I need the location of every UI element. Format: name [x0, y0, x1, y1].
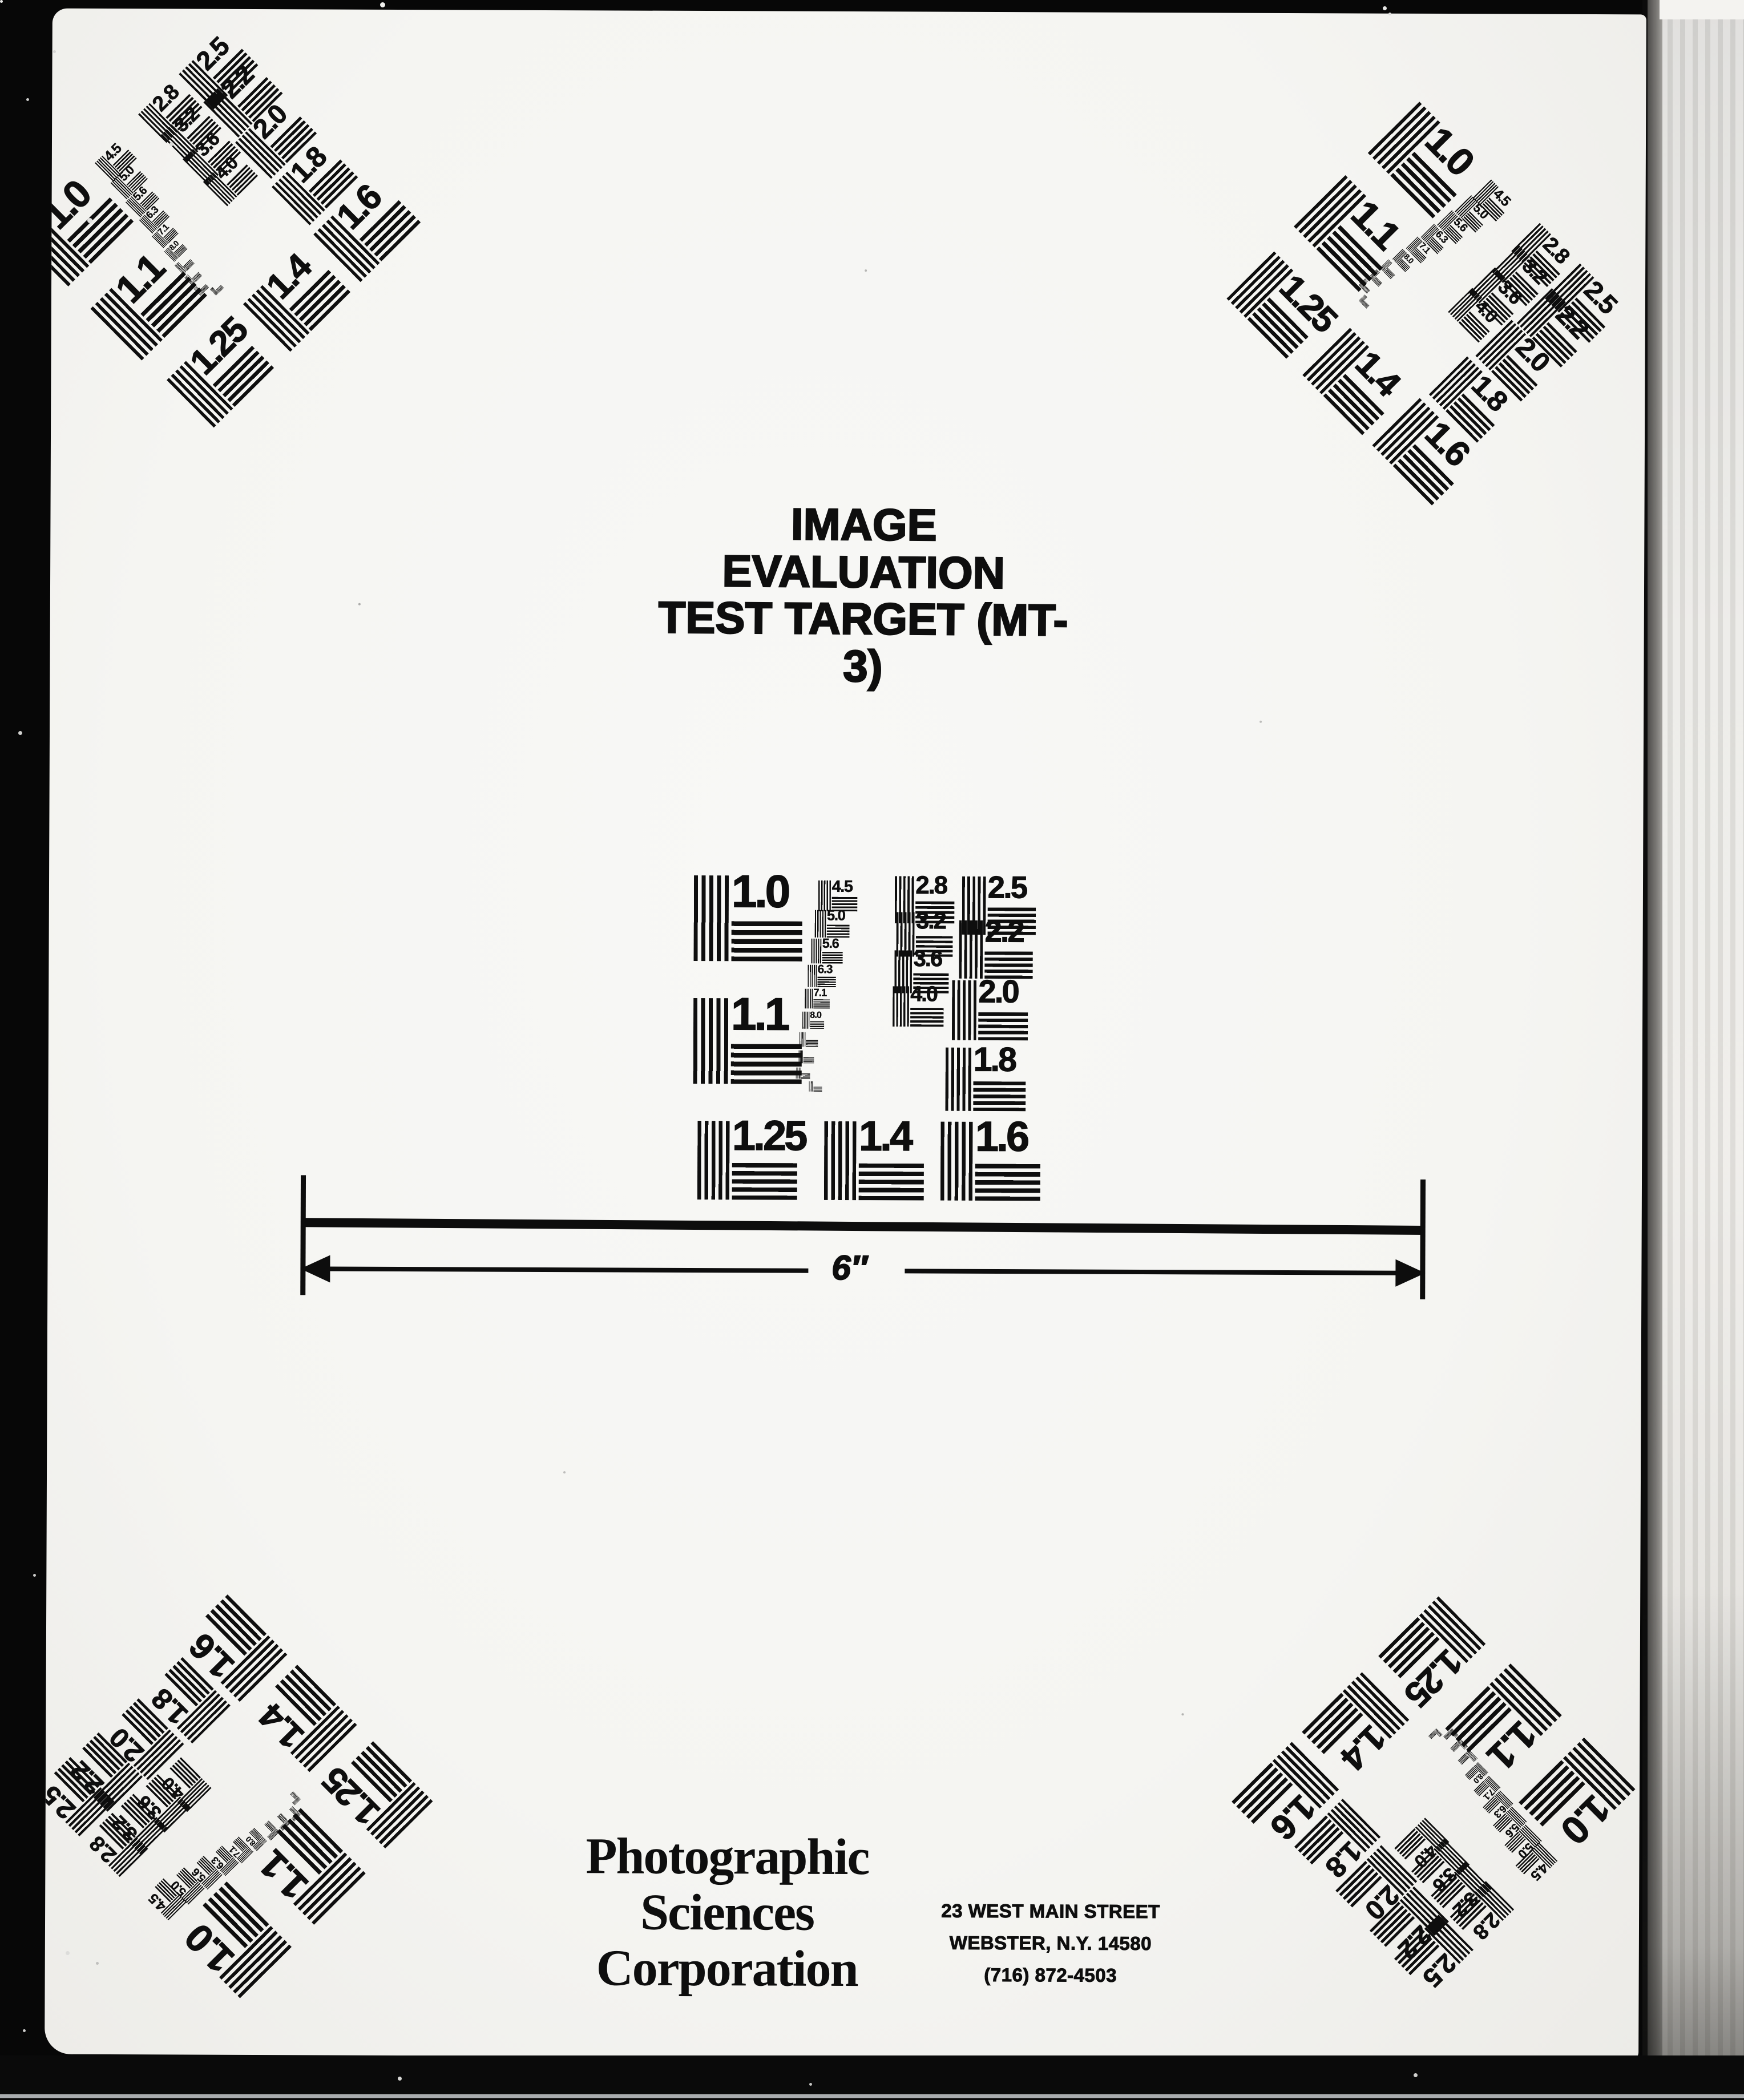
horizontal-bars-icon [810, 1021, 824, 1029]
resolution-cell-1.25: 1.25 [326, 1741, 433, 1848]
test-pattern-bottom-right: 1.01.11.251.41.64.55.05.66.37.18.02.83.2… [1224, 1589, 1635, 2001]
resolution-cell-tick [798, 1051, 814, 1064]
horizontal-bars-icon [731, 921, 802, 961]
horizontal-bars-icon [822, 952, 843, 963]
dust-specks-white [0, 0, 3, 3]
resolution-cell-5.6: 5.6 [811, 939, 842, 964]
cell-label: 2.5 [988, 872, 1027, 903]
resolution-cell-7.1: 7.1 [805, 989, 830, 1009]
resolution-cell-tick [1428, 1729, 1443, 1743]
resolution-cell-1.8: 1.8 [945, 1048, 1026, 1112]
scale-arrow-line-right [905, 1269, 1399, 1275]
vertical-bars-icon [811, 939, 821, 964]
cell-label: 1.25 [732, 1114, 806, 1157]
resolution-cell-2.2: 2.2 [959, 920, 1033, 979]
company-line-2: Sciences [556, 1884, 898, 1941]
resolution-cell-1.25: 1.25 [697, 1121, 797, 1200]
resolution-cell-1.6: 1.6 [940, 1122, 1040, 1201]
horizontal-bars-icon [804, 1057, 814, 1064]
vertical-bars-icon [940, 1122, 973, 1201]
horizontal-bars-icon [1428, 1731, 1436, 1739]
horizontal-bars-icon [732, 1163, 797, 1200]
scanned-page: 1.01.11.251.41.64.55.05.66.37.18.02.83.2… [45, 9, 1646, 2061]
dust-specks-dark [53, 9, 55, 11]
horizontal-bars-icon [200, 284, 209, 293]
six-inch-scale: 6″ [53, 9, 1646, 15]
vertical-bars-icon [945, 1048, 971, 1111]
vertical-bars-icon [824, 1121, 857, 1200]
scale-label: 6″ [812, 1251, 886, 1285]
company-address: 23 WEST MAIN STREET WEBSTER, N.Y. 14580 … [862, 1895, 1240, 1992]
cell-label: 2.0 [978, 975, 1018, 1007]
cell-label: 3.6 [913, 947, 942, 970]
vertical-bars-icon [959, 920, 983, 979]
horizontal-bars-icon [731, 1044, 802, 1084]
adjacent-page-edge [1642, 0, 1744, 2100]
vertical-bars-icon [893, 986, 909, 1027]
horizontal-bars-icon [973, 1081, 1026, 1111]
horizontal-bars-icon [801, 1073, 810, 1079]
resolution-cell-1.1: 1.1 [693, 998, 802, 1084]
vertical-bars-icon [808, 965, 817, 987]
resolution-cell-tick [796, 1068, 810, 1079]
vertical-bars-icon [800, 1032, 805, 1047]
resolution-cell-1.4: 1.4 [824, 1121, 924, 1201]
vertical-bars-icon [798, 1051, 803, 1064]
test-pattern-top-right: 1.01.11.251.41.64.55.05.66.37.18.02.83.2… [1220, 102, 1631, 513]
address-line-1: 23 WEST MAIN STREET [862, 1895, 1239, 1928]
horizontal-bars-icon [1361, 301, 1369, 309]
page-edge-bottom-shade [1642, 1586, 1744, 2100]
horizontal-bars-icon [1372, 277, 1382, 287]
cell-label: 2.8 [915, 873, 947, 898]
cell-label: 8.0 [810, 1010, 821, 1019]
cell-label: 1.4 [859, 1115, 911, 1157]
horizontal-bars-icon [813, 999, 830, 1008]
horizontal-bars-icon [216, 285, 224, 293]
cell-label: 1.8 [974, 1043, 1016, 1076]
vertical-bars-icon [815, 910, 826, 938]
test-pattern-bottom-left: 1.01.11.251.41.64.55.05.66.37.18.02.83.2… [45, 1586, 439, 1998]
resolution-cell-1.4: 1.4 [250, 1665, 357, 1772]
vertical-bars-icon [697, 1121, 730, 1200]
horizontal-bars-icon [814, 1087, 822, 1091]
resolution-cell-1.4: 1.4 [1302, 1672, 1409, 1779]
cell-label: 6.3 [818, 963, 833, 975]
bottom-black-bar [0, 2055, 1744, 2100]
test-pattern-center: 1.01.11.251.41.64.55.05.66.37.18.02.83.2… [693, 875, 1048, 1207]
horizontal-bars-icon [1362, 285, 1370, 293]
resolution-cell-4.0: 4.0 [893, 986, 944, 1027]
cell-label: 5.0 [827, 908, 845, 923]
cell-label: 1.1 [731, 991, 788, 1037]
page-title: IMAGE EVALUATION TEST TARGET (MT-3) [646, 499, 1081, 691]
cell-label: 2.2 [984, 916, 1023, 947]
resolution-cell-tick [1359, 294, 1373, 309]
scan-frame: 1.01.11.251.41.64.55.05.66.37.18.02.83.2… [0, 0, 1744, 2100]
resolution-cell-5.0: 5.0 [815, 910, 850, 938]
resolution-cell-1.0: 1.0 [693, 875, 802, 962]
page-edge-top-notch [1660, 0, 1744, 19]
horizontal-bars-icon [1384, 268, 1395, 279]
resolution-cell-tick [210, 281, 224, 296]
vertical-bars-icon [805, 989, 813, 1009]
resolution-cell-1.4: 1.4 [1302, 328, 1410, 435]
horizontal-bars-icon [978, 1012, 1028, 1040]
horizontal-bars-icon [859, 1164, 924, 1201]
horizontal-bars-icon [910, 1008, 943, 1027]
company-line-1: Photographic [556, 1828, 898, 1885]
arrowhead-left-icon [300, 1255, 330, 1282]
resolution-cell-2.0: 2.0 [952, 980, 1028, 1041]
vertical-bars-icon [952, 980, 976, 1040]
vertical-bars-icon [802, 1012, 809, 1029]
scanner-bed-edge [0, 2094, 1744, 2098]
resolution-cell-1.4: 1.4 [243, 245, 350, 352]
horizontal-bars-icon [817, 977, 835, 987]
cell-label: 4.0 [910, 983, 937, 1005]
vertical-bars-icon [693, 875, 729, 961]
cell-label: 4.5 [832, 878, 853, 895]
resolution-cell-1.25: 1.25 [1378, 1596, 1485, 1703]
resolution-cell-1.25: 1.25 [1226, 252, 1334, 359]
company-name: Photographic Sciences Corporation [556, 1828, 899, 1998]
title-line-2: TEST TARGET (MT-3) [646, 594, 1080, 692]
cell-label: 7.1 [813, 987, 826, 997]
cell-label: 1.6 [975, 1116, 1028, 1158]
vertical-bars-icon [693, 998, 729, 1084]
title-line-1: IMAGE EVALUATION [647, 499, 1081, 597]
resolution-cell-6.3: 6.3 [808, 965, 836, 987]
horizontal-bars-icon [975, 1164, 1040, 1201]
address-line-3: (716) 872-4503 [862, 1958, 1239, 1992]
horizontal-bars-icon [806, 1040, 818, 1047]
resolution-cell-tick [287, 1791, 301, 1806]
vertical-bars-icon [809, 1081, 813, 1092]
horizontal-bars-icon [1443, 1731, 1452, 1740]
vertical-bars-icon [796, 1068, 801, 1079]
test-pattern-top-left: 1.01.11.251.41.64.55.05.66.37.18.02.83.2… [45, 23, 429, 434]
resolution-cell-8.0: 8.0 [802, 1012, 824, 1029]
scale-arrow-line-left [325, 1267, 808, 1273]
cell-label: 1.0 [732, 869, 789, 914]
company-line-3: Corporation [556, 1940, 898, 1997]
resolution-cell-1.25: 1.25 [167, 320, 274, 427]
arrowhead-right-icon [1395, 1259, 1425, 1287]
address-line-2: WEBSTER, N.Y. 14580 [862, 1927, 1239, 1960]
scale-bar [305, 1218, 1425, 1235]
resolution-cell-tick [809, 1081, 822, 1092]
cell-label: 5.6 [822, 936, 839, 950]
resolution-cell-tick [800, 1032, 818, 1047]
cell-label: 3.2 [916, 908, 946, 932]
